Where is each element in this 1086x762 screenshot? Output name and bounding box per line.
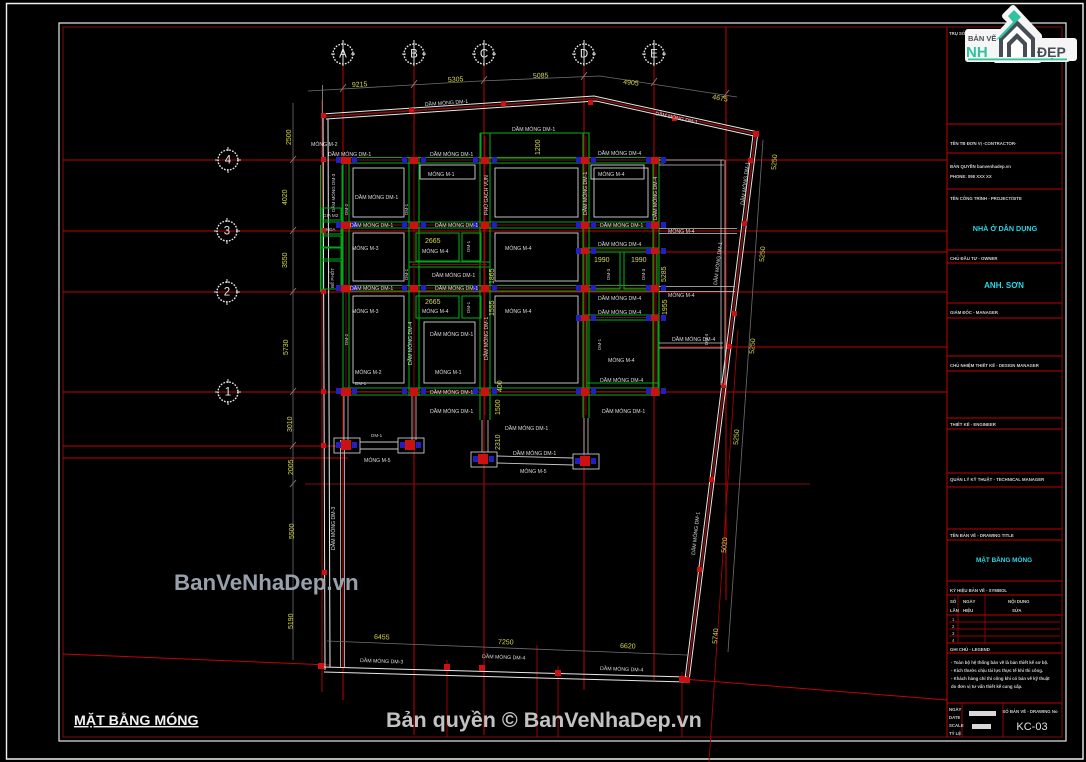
svg-text:MẶT BẰNG MÓNG: MẶT BẰNG MÓNG bbox=[976, 555, 1032, 564]
svg-text:1555: 1555 bbox=[489, 300, 496, 316]
svg-text:TÊN BẢN VẼ - DRAWING TITLE: TÊN BẢN VẼ - DRAWING TITLE bbox=[950, 533, 1014, 538]
svg-text:5190: 5190 bbox=[288, 613, 295, 629]
svg-text:400: 400 bbox=[497, 380, 504, 392]
svg-text:DẦM MÓNG DM-1: DẦM MÓNG DM-1 bbox=[435, 222, 478, 229]
svg-text:1865: 1865 bbox=[489, 268, 496, 284]
svg-text:5250: 5250 bbox=[749, 338, 757, 354]
svg-text:5085: 5085 bbox=[533, 72, 549, 80]
svg-text:DATE: DATE bbox=[949, 715, 961, 720]
svg-text:MẶT BẰNG MÓNG: MẶT BẰNG MÓNG bbox=[74, 711, 199, 729]
svg-text:DẦM MÓNG DM-1: DẦM MÓNG DM-1 bbox=[355, 194, 398, 201]
svg-text:DẦM MÓNG DM-1: DẦM MÓNG DM-1 bbox=[483, 317, 490, 360]
svg-text:5250: 5250 bbox=[771, 154, 779, 170]
svg-text:5500: 5500 bbox=[289, 523, 296, 539]
svg-text:KĐA: KĐA bbox=[326, 227, 336, 232]
svg-text:BanVeNhaDep.vn: BanVeNhaDep.vn bbox=[174, 570, 359, 595]
svg-text:NH: NH bbox=[966, 44, 988, 61]
svg-text:2500: 2500 bbox=[286, 129, 293, 145]
svg-text:BỂ PHỐT: BỂ PHỐT bbox=[329, 268, 335, 288]
svg-text:DẦM MÓNG DM-4: DẦM MÓNG DM-4 bbox=[598, 241, 641, 248]
svg-text:NGÀY: NGÀY bbox=[963, 599, 976, 604]
svg-text:DẦM MÓNG DM-1: DẦM MÓNG DM-1 bbox=[582, 172, 589, 215]
svg-text:DẦM MÓNG DM-1: DẦM MÓNG DM-1 bbox=[435, 285, 478, 292]
svg-text:1990: 1990 bbox=[631, 257, 647, 264]
svg-text:MÓNG M-2: MÓNG M-2 bbox=[355, 369, 382, 376]
svg-text:- Khách hàng chỉ thi công khi: - Khách hàng chỉ thi công khi có bản vẽ … bbox=[951, 676, 1050, 681]
svg-text:DẦM MÓNG DM-3: DẦM MÓNG DM-3 bbox=[330, 507, 337, 550]
svg-text:DM-1: DM-1 bbox=[466, 301, 471, 313]
svg-text:GHI CHÚ - LEGEND: GHI CHÚ - LEGEND bbox=[950, 647, 990, 652]
svg-text:SCALE: SCALE bbox=[949, 723, 964, 728]
svg-text:TÊN TB ĐƠN VỊ -CONTRACTOR-: TÊN TB ĐƠN VỊ -CONTRACTOR- bbox=[950, 141, 1017, 146]
svg-text:MÓNG M-5: MÓNG M-5 bbox=[364, 457, 391, 464]
svg-text:A: A bbox=[339, 49, 347, 61]
svg-text:ĐẸP: ĐẸP bbox=[1037, 44, 1066, 60]
svg-text:MÓNG M-4: MÓNG M-4 bbox=[505, 308, 532, 315]
svg-text:DẦM MÓNG DM-1: DẦM MÓNG DM-1 bbox=[430, 389, 473, 396]
svg-text:DẦM MÓNG DM-4: DẦM MÓNG DM-4 bbox=[598, 150, 641, 157]
svg-text:MÓNG M-5: MÓNG M-5 bbox=[520, 468, 547, 475]
svg-text:4: 4 bbox=[225, 155, 232, 167]
svg-text:DẦM MÓNG DM-1: DẦM MÓNG DM-1 bbox=[602, 408, 645, 415]
svg-text:DM-3: DM-3 bbox=[606, 268, 611, 280]
svg-text:2665: 2665 bbox=[425, 299, 441, 306]
svg-text:DẦM MÓNG DM-1: DẦM MÓNG DM-1 bbox=[328, 151, 371, 158]
svg-text:DM-1: DM-1 bbox=[404, 268, 409, 280]
svg-text:1955: 1955 bbox=[662, 299, 669, 315]
svg-text:QUẢN LÝ KỸ THUẬT - TECHNICAL M: QUẢN LÝ KỸ THUẬT - TECHNICAL MANAGER bbox=[950, 477, 1045, 482]
svg-text:2665: 2665 bbox=[425, 238, 441, 245]
svg-text:MÓNG M-4: MÓNG M-4 bbox=[598, 171, 625, 178]
svg-text:DẦM MÓNG DM-1: DẦM MÓNG DM-1 bbox=[600, 222, 643, 229]
svg-text:MÓNG M-4: MÓNG M-4 bbox=[668, 292, 695, 299]
svg-text:4020: 4020 bbox=[282, 189, 289, 205]
svg-text:DẦM MÓNG DM-1: DẦM MÓNG DM-1 bbox=[513, 450, 556, 457]
svg-text:5250: 5250 bbox=[759, 246, 767, 262]
svg-text:SỐ: SỐ bbox=[950, 599, 957, 604]
svg-text:DẦM MÓNG DM-1: DẦM MÓNG DM-1 bbox=[505, 425, 548, 432]
svg-text:5020: 5020 bbox=[721, 537, 729, 553]
svg-text:GIÁM ĐỐC - MANAGER: GIÁM ĐỐC - MANAGER bbox=[950, 310, 999, 315]
svg-text:DM-2: DM-2 bbox=[344, 333, 349, 345]
svg-text:E: E bbox=[650, 49, 658, 61]
svg-text:MÓNG M-4: MÓNG M-4 bbox=[668, 228, 695, 235]
svg-text:CHỦ NHIỆM THIẾT KẾ - DESIGN MA: CHỦ NHIỆM THIẾT KẾ - DESIGN MANAGER bbox=[950, 363, 1040, 368]
svg-text:5250: 5250 bbox=[733, 429, 741, 445]
svg-text:D: D bbox=[580, 49, 588, 61]
svg-text:NHÀ Ở DÂN DỤNG: NHÀ Ở DÂN DỤNG bbox=[973, 224, 1038, 233]
svg-text:DẦM MÓNG DM-3: DẦM MÓNG DM-3 bbox=[330, 173, 336, 212]
svg-text:GIA M2: GIA M2 bbox=[323, 213, 339, 218]
svg-text:- Kích thước chịu tải lực thực: - Kích thước chịu tải lực thực tế khi th… bbox=[951, 668, 1043, 673]
svg-text:5305: 5305 bbox=[448, 76, 464, 84]
svg-text:TỶ LỆ: TỶ LỆ bbox=[949, 731, 961, 736]
svg-text:2: 2 bbox=[224, 287, 230, 299]
svg-text:LẦN: LẦN bbox=[950, 608, 959, 613]
svg-text:5740: 5740 bbox=[712, 628, 720, 644]
svg-text:NỘI DUNG: NỘI DUNG bbox=[1008, 599, 1030, 604]
svg-text:5285: 5285 bbox=[661, 266, 668, 282]
svg-text:DM-1: DM-1 bbox=[355, 381, 367, 386]
svg-text:1500: 1500 bbox=[495, 399, 502, 415]
svg-text:DM-1: DM-1 bbox=[371, 433, 383, 438]
svg-text:DẦM MÓNG DM-1: DẦM MÓNG DM-1 bbox=[430, 151, 473, 158]
svg-text:DẦM MÓNG DM-1: DẦM MÓNG DM-1 bbox=[430, 408, 473, 415]
svg-text:DẦM MÓNG DM-1: DẦM MÓNG DM-1 bbox=[350, 285, 393, 292]
svg-text:3010: 3010 bbox=[287, 416, 294, 432]
svg-text:DM-3: DM-3 bbox=[641, 268, 646, 280]
svg-text:BẢN QUYỀN banvenhadep.vn: BẢN QUYỀN banvenhadep.vn bbox=[950, 164, 1011, 169]
svg-text:DM-1: DM-1 bbox=[404, 203, 409, 215]
svg-text:2310: 2310 bbox=[495, 434, 502, 450]
svg-text:CHỦ ĐẦU TƯ - OWNER: CHỦ ĐẦU TƯ - OWNER bbox=[950, 256, 998, 261]
svg-text:6620: 6620 bbox=[620, 643, 636, 651]
svg-text:DẦM MÓNG DM-1: DẦM MÓNG DM-1 bbox=[512, 126, 555, 133]
svg-text:DM-1: DM-1 bbox=[466, 240, 471, 252]
svg-text:MÓNG M-3: MÓNG M-3 bbox=[352, 245, 379, 252]
svg-text:1200: 1200 bbox=[535, 139, 542, 155]
svg-text:BẢN VẼ: BẢN VẼ bbox=[968, 34, 996, 43]
svg-text:THIẾT KẾ - ENGINEER: THIẾT KẾ - ENGINEER bbox=[950, 422, 997, 427]
svg-text:SỬA: SỬA bbox=[1012, 608, 1022, 613]
svg-text:PHỦ GẠCH VỤN: PHỦ GẠCH VỤN bbox=[483, 175, 490, 215]
svg-text:- Toàn bộ hệ thống bản vẽ là b: - Toàn bộ hệ thống bản vẽ là bản thiết k… bbox=[951, 660, 1048, 665]
svg-text:Bản quyền © BanVeNhaDep.vn: Bản quyền © BanVeNhaDep.vn bbox=[386, 708, 702, 732]
svg-text:MÓNG M-4: MÓNG M-4 bbox=[608, 357, 635, 364]
svg-text:MÓNG M-2: MÓNG M-2 bbox=[311, 141, 338, 148]
svg-text:NGÀY: NGÀY bbox=[949, 707, 962, 712]
svg-text:MÓNG M-1: MÓNG M-1 bbox=[435, 369, 462, 376]
svg-text:7250: 7250 bbox=[498, 639, 514, 647]
svg-text:DM-4: DM-4 bbox=[704, 333, 709, 345]
svg-text:MÓNG M-4: MÓNG M-4 bbox=[422, 308, 449, 315]
svg-text:DẦM MÓNG DM-1: DẦM MÓNG DM-1 bbox=[432, 272, 475, 279]
svg-text:6455: 6455 bbox=[374, 634, 390, 642]
svg-text:5730: 5730 bbox=[283, 339, 290, 355]
svg-text:KÝ HIỆU BẢN VẼ - SYMBOL: KÝ HIỆU BẢN VẼ - SYMBOL bbox=[950, 588, 1007, 593]
svg-text:DẦM MÓNG DM-4: DẦM MÓNG DM-4 bbox=[600, 377, 643, 384]
svg-text:MÓNG M-4: MÓNG M-4 bbox=[505, 245, 532, 252]
svg-text:KC-03: KC-03 bbox=[1016, 721, 1047, 733]
svg-text:3550: 3550 bbox=[282, 252, 289, 268]
svg-text:DẦM MÓNG DM-4: DẦM MÓNG DM-4 bbox=[652, 177, 659, 220]
svg-text:PHONE: 098 XXX XX: PHONE: 098 XXX XX bbox=[950, 174, 992, 179]
svg-text:DM-2: DM-2 bbox=[344, 203, 349, 215]
svg-text:MÓNG M-1: MÓNG M-1 bbox=[428, 171, 455, 178]
svg-text:ANH. SƠN: ANH. SƠN bbox=[984, 281, 1024, 290]
svg-text:B: B bbox=[410, 49, 418, 61]
svg-text:1990: 1990 bbox=[594, 257, 610, 264]
svg-text:do đơn vị tư vấn thiết kế cung: do đơn vị tư vấn thiết kế cung cấp. bbox=[951, 684, 1022, 689]
svg-text:1: 1 bbox=[225, 387, 231, 399]
svg-text:9215: 9215 bbox=[352, 81, 368, 89]
svg-text:C: C bbox=[480, 49, 488, 61]
svg-text:3: 3 bbox=[224, 226, 230, 238]
svg-text:DẦM MÓNG DM-4: DẦM MÓNG DM-4 bbox=[598, 309, 641, 316]
svg-text:MÓNG M-4: MÓNG M-4 bbox=[422, 248, 449, 255]
svg-text:DẦM MÓNG DM-4: DẦM MÓNG DM-4 bbox=[407, 322, 414, 365]
svg-text:DẦM MÓNG DM-1: DẦM MÓNG DM-1 bbox=[350, 222, 393, 229]
svg-text:DM-1: DM-1 bbox=[597, 338, 602, 350]
svg-text:2005: 2005 bbox=[288, 459, 295, 475]
svg-text:DẦM MÓNG DM-4: DẦM MÓNG DM-4 bbox=[598, 295, 641, 302]
svg-text:HIỆU: HIỆU bbox=[963, 608, 973, 613]
svg-text:DẦM MÓNG DM-1: DẦM MÓNG DM-1 bbox=[430, 331, 473, 338]
svg-text:MÓNG M-3: MÓNG M-3 bbox=[352, 308, 379, 315]
svg-text:TÊN CÔNG TRÌNH - PROJECT/SITE: TÊN CÔNG TRÌNH - PROJECT/SITE bbox=[950, 196, 1022, 201]
svg-text:SỐ BẢN VẼ - DRAWING No: SỐ BẢN VẼ - DRAWING No bbox=[1002, 709, 1058, 714]
